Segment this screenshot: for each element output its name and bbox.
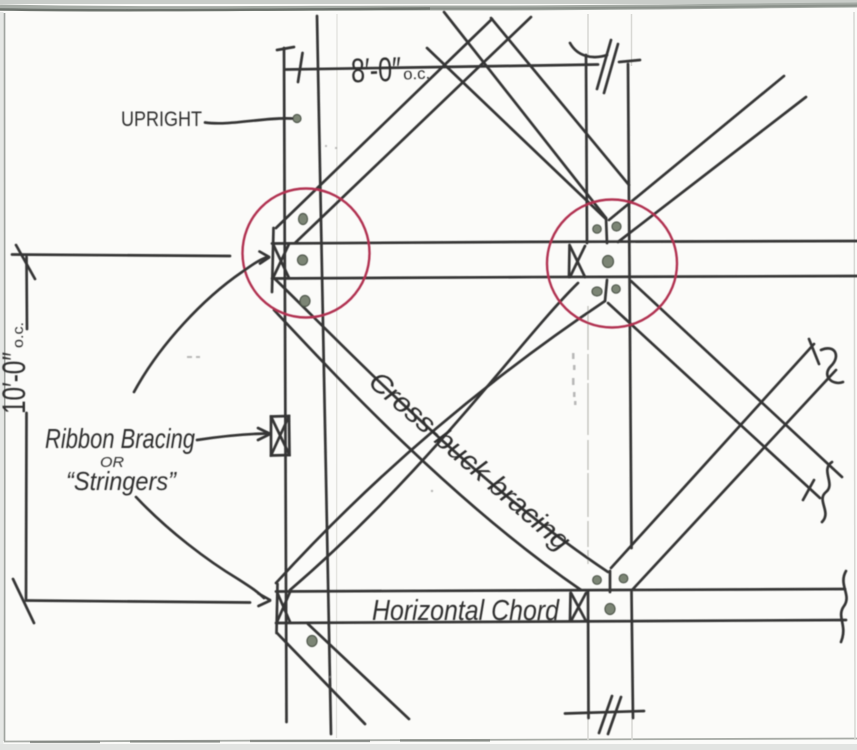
svg-text:10′-0″: 10′-0″ — [0, 352, 32, 414]
svg-text:UPRIGHT: UPRIGHT — [121, 108, 202, 131]
svg-text:“Stringers”: “Stringers” — [66, 466, 177, 496]
svg-text:Ribbon Bracing: Ribbon Bracing — [45, 423, 195, 454]
svg-text:o.c.: o.c. — [403, 66, 431, 84]
svg-text:8′-0″: 8′-0″ — [350, 51, 401, 91]
svg-text:Horizontal Chord: Horizontal Chord — [372, 595, 560, 627]
svg-text:o.c.: o.c. — [10, 322, 27, 348]
